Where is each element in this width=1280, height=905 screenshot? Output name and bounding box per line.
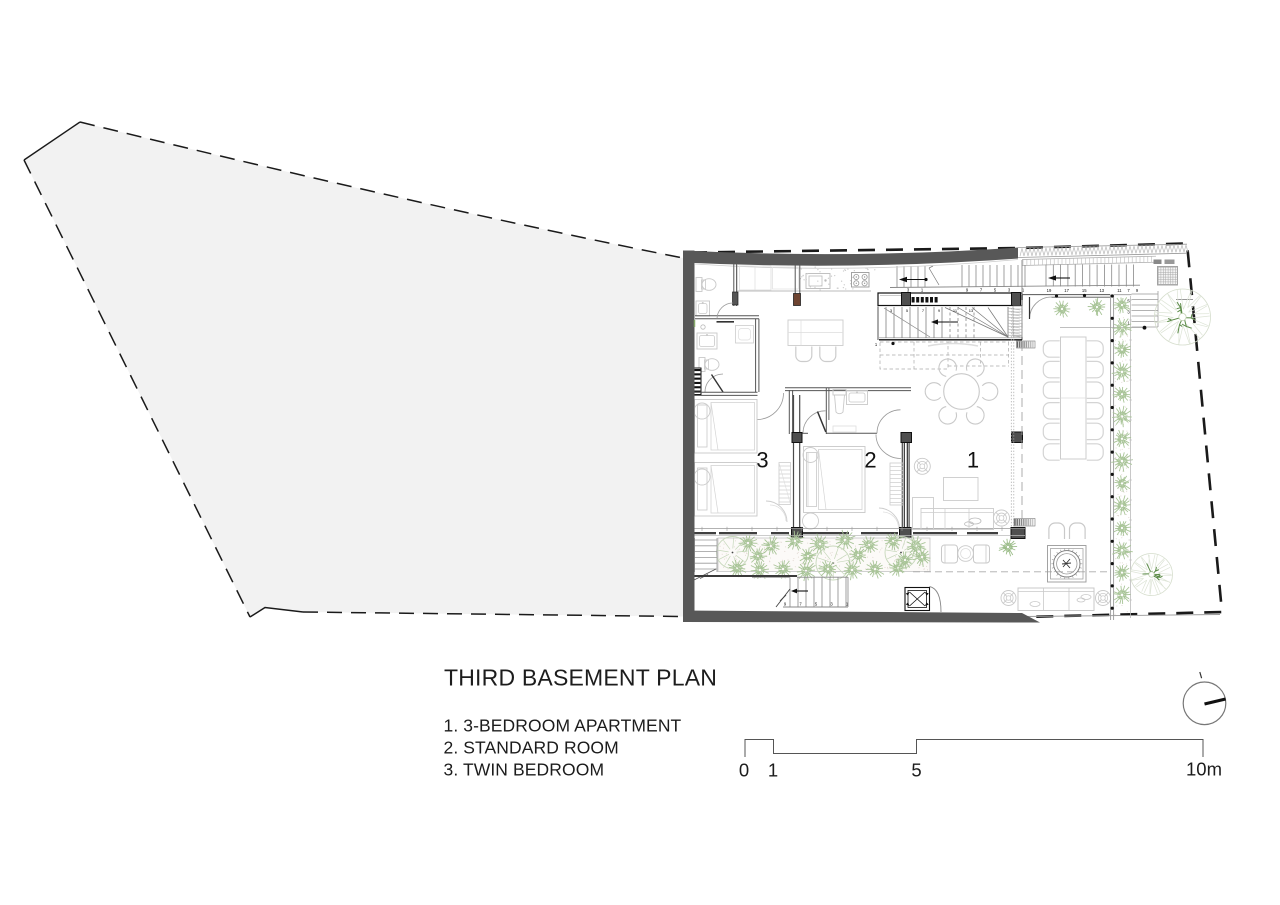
svg-text:1. 3-BEDROOM APARTMENT: 1. 3-BEDROOM APARTMENT xyxy=(444,716,682,736)
svg-text:0: 0 xyxy=(739,760,749,781)
svg-text:11: 11 xyxy=(1117,288,1122,293)
svg-text:1: 1 xyxy=(768,760,778,781)
svg-text:1: 1 xyxy=(967,448,979,473)
svg-text:17: 17 xyxy=(1064,288,1069,293)
svg-text:15: 15 xyxy=(1082,288,1087,293)
svg-text:THIRD BASEMENT PLAN: THIRD BASEMENT PLAN xyxy=(444,665,717,691)
svg-text:3. TWIN BEDROOM: 3. TWIN BEDROOM xyxy=(444,760,605,780)
svg-text:13: 13 xyxy=(1099,288,1104,293)
svg-text:19: 19 xyxy=(1047,288,1052,293)
svg-text:2: 2 xyxy=(864,448,876,473)
svg-text:13: 13 xyxy=(969,308,974,313)
svg-text:3: 3 xyxy=(756,448,768,473)
svg-text:5: 5 xyxy=(911,760,921,781)
svg-text:2. STANDARD ROOM: 2. STANDARD ROOM xyxy=(444,738,619,758)
svg-text:10m: 10m xyxy=(1186,759,1222,780)
